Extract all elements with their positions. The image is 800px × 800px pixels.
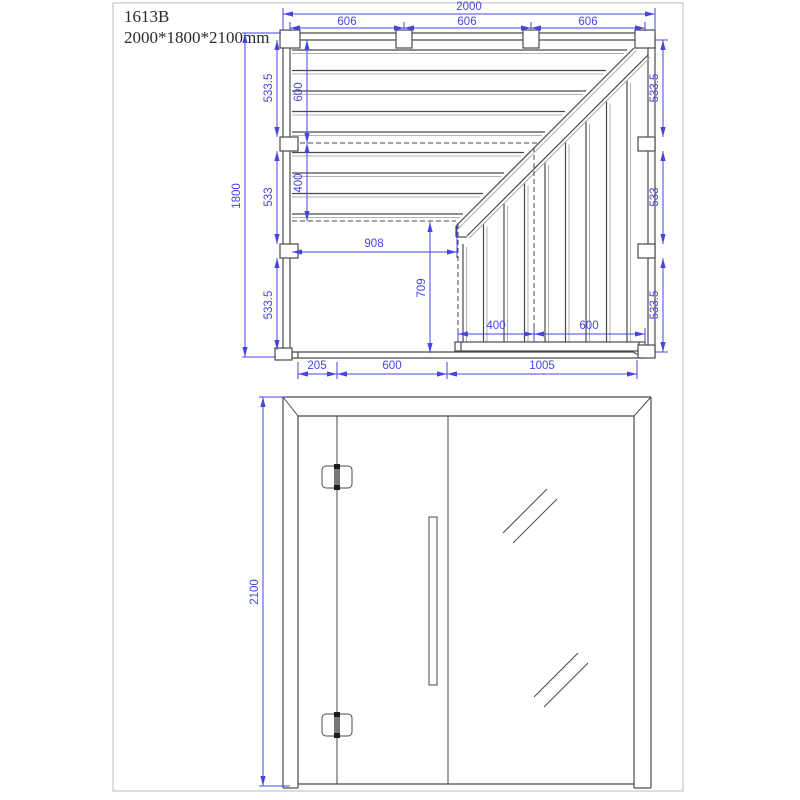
- dim-floor-width: 908: [364, 238, 383, 250]
- dim-width-seg-1: 606: [337, 16, 356, 28]
- dim-width-total: 2000: [456, 1, 482, 13]
- dim-bottom-seg-3: 1005: [529, 360, 555, 372]
- glass-mark-upper: [503, 489, 557, 543]
- dim-width-seg-3: 606: [578, 16, 597, 28]
- dim-right-seg-2: 533: [649, 187, 661, 206]
- dim-bottom-seg-2: 600: [382, 360, 401, 372]
- dim-depth-total: 1800: [231, 183, 243, 209]
- plan-vertical-slats: [463, 80, 631, 342]
- front-view: 2100: [249, 397, 651, 788]
- dim-floor-depth: 709: [416, 278, 428, 297]
- dim-width-seg-2: 606: [457, 16, 476, 28]
- hinge-top: [322, 464, 352, 490]
- front-dimensions: 2100: [249, 397, 290, 786]
- door-handle: [429, 517, 437, 685]
- dim-bench-depth-upper: 600: [293, 82, 305, 101]
- plan-walls: [283, 33, 655, 358]
- plan-dimensions: 2000 606 606 606 1800 533.5 533 533.5: [231, 1, 668, 379]
- technical-drawing: 1613B 2000*1800*2100mm: [0, 0, 800, 800]
- dim-right-seg-3: 533.5: [649, 291, 661, 320]
- dim-left-seg-2: 533: [263, 187, 275, 206]
- hinge-bottom: [322, 712, 352, 738]
- dim-bench-width-right: 600: [579, 320, 598, 332]
- title-block: 1613B 2000*1800*2100mm: [124, 7, 269, 47]
- dim-bottom-seg-1: 205: [307, 360, 326, 372]
- plan-bench-front-bar: [455, 342, 645, 351]
- dim-left-seg-3: 533.5: [263, 291, 275, 320]
- plan-view: 2000 606 606 606 1800 533.5 533 533.5: [231, 1, 668, 379]
- glass-mark-lower: [534, 653, 588, 707]
- dim-bench-width-left: 400: [486, 320, 505, 332]
- model-number: 1613B: [124, 7, 169, 26]
- dim-left-seg-1: 533.5: [263, 74, 275, 103]
- dim-bench-depth-lower: 400: [293, 173, 305, 192]
- plan-wall-posts: [275, 30, 655, 360]
- front-door: [337, 416, 448, 784]
- dim-right-seg-1: 533.5: [649, 74, 661, 103]
- overall-size: 2000*1800*2100mm: [124, 28, 269, 47]
- plan-door-sill: [292, 352, 645, 358]
- plan-horizontal-slats: [292, 50, 627, 218]
- dim-height-total: 2100: [249, 579, 261, 605]
